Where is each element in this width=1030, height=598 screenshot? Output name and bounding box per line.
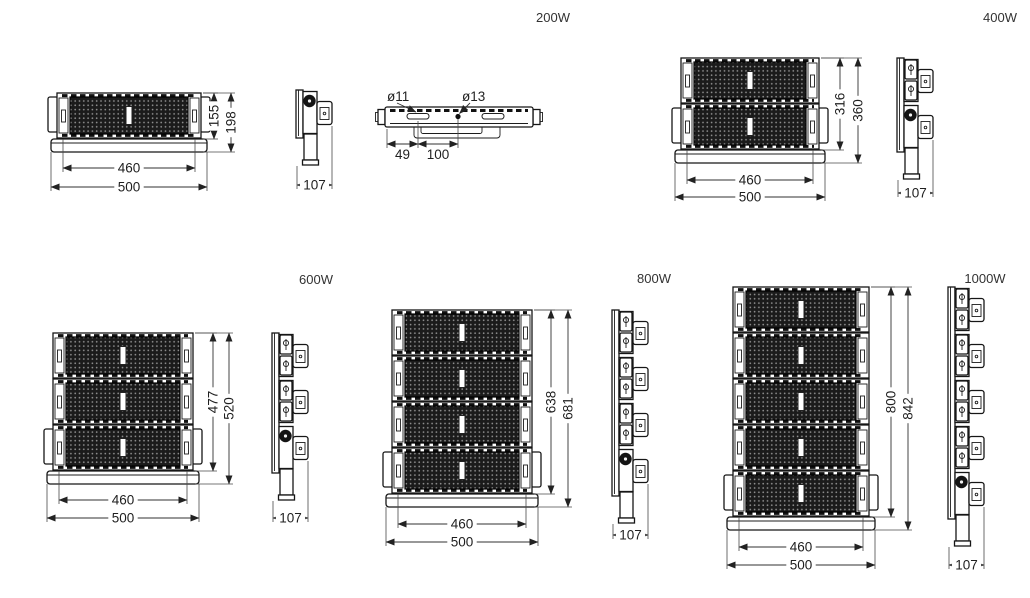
center-slot — [459, 462, 465, 480]
vertical-dimension-label: 842 — [901, 394, 916, 423]
dimension-label: 316 — [833, 93, 848, 116]
center-slot — [120, 347, 126, 365]
mount-slot-right — [482, 114, 504, 120]
back-plate — [296, 90, 303, 138]
dimension-label: 842 — [901, 397, 916, 420]
center-slot — [459, 370, 465, 388]
driver-box — [293, 345, 308, 368]
bracket-foot — [619, 518, 635, 523]
wattage-label: 800W — [637, 271, 672, 286]
top-end-cap-left — [378, 110, 385, 125]
bracket-foot — [279, 495, 295, 500]
vertical-dimension-label: 316 — [833, 89, 848, 118]
bracket-arm — [956, 515, 969, 541]
driver-box — [317, 102, 332, 125]
driver-box — [633, 414, 648, 437]
mount-base — [386, 494, 538, 507]
driver-box — [633, 460, 648, 483]
center-slot — [747, 72, 753, 90]
dimension-label: 107 — [955, 558, 978, 573]
center-slot — [120, 439, 126, 457]
center-slot — [459, 416, 465, 434]
center-slot — [798, 485, 804, 503]
dimension-label: 107 — [303, 178, 326, 193]
aiming-knob-center — [909, 113, 912, 116]
dimension-label: ø13 — [462, 89, 485, 104]
vertical-dimension-label: 681 — [561, 394, 576, 423]
center-slot — [459, 324, 465, 342]
driver-box — [918, 116, 933, 139]
dimension-label: 198 — [224, 111, 239, 134]
dimension-label: 638 — [544, 391, 559, 414]
dimension-label: 460 — [118, 161, 141, 176]
dimension-label: 360 — [851, 99, 866, 122]
center-slot — [798, 393, 804, 411]
center-slot — [120, 393, 126, 411]
dimension-label: 460 — [790, 540, 813, 555]
floodlight-dimension-sheet: 200W460500155198107400W46050031636010760… — [0, 0, 1030, 598]
mount-base — [51, 139, 207, 152]
bracket-foot — [904, 174, 920, 179]
dimension-label: 107 — [279, 511, 302, 526]
vertical-dimension-label: 198 — [224, 108, 239, 137]
driver-box — [293, 391, 308, 414]
driver-box — [969, 299, 984, 322]
dimension-label: 500 — [451, 535, 474, 550]
driver-box — [918, 70, 933, 93]
dimension-label: 460 — [451, 517, 474, 532]
back-plate — [272, 333, 279, 473]
bracket-arm — [620, 492, 633, 518]
wattage-label: 1000W — [964, 271, 1006, 286]
dimension-label: 107 — [619, 528, 642, 543]
mount-base — [675, 150, 825, 163]
mount-slot-left — [407, 114, 429, 120]
driver-box — [969, 391, 984, 414]
vertical-dimension-label: 477 — [206, 387, 221, 416]
wattage-label: 600W — [299, 272, 334, 287]
aiming-knob-center — [308, 99, 311, 102]
center-slot — [798, 439, 804, 457]
dimension-label: 681 — [561, 397, 576, 420]
bracket-arm — [905, 148, 918, 174]
dimension-label: 500 — [739, 190, 762, 205]
vertical-dimension-label: 155 — [207, 101, 222, 130]
vertical-dimension-label: 638 — [544, 387, 559, 416]
bracket-foot — [955, 541, 971, 546]
driver-box — [633, 368, 648, 391]
back-plate — [897, 58, 904, 152]
vertical-dimension-label: 800 — [884, 387, 899, 416]
driver-box — [633, 322, 648, 345]
driver-box — [969, 483, 984, 506]
mount-base — [47, 471, 199, 484]
vertical-dimension-label: 520 — [222, 394, 237, 423]
dimension-label: 100 — [427, 147, 450, 162]
center-slot — [126, 107, 132, 125]
wattage-label: 200W — [536, 10, 571, 25]
dimension-drawing-canvas: 200W460500155198107400W46050031636010760… — [0, 0, 1030, 598]
wattage-label: 400W — [983, 10, 1018, 25]
driver-box — [293, 437, 308, 460]
aiming-knob-center — [624, 457, 627, 460]
dimension-label: 49 — [395, 147, 410, 162]
center-slot — [798, 347, 804, 365]
driver-box — [969, 437, 984, 460]
dimension-label: 460 — [739, 173, 762, 188]
dimension-label: 500 — [118, 180, 141, 195]
aiming-knob-center — [960, 480, 963, 483]
dimension-label: 500 — [790, 558, 813, 573]
dimension-label: 155 — [207, 105, 222, 128]
center-hole — [455, 114, 460, 119]
dimension-label: 500 — [112, 511, 135, 526]
back-plate — [612, 310, 619, 496]
mount-base — [727, 517, 875, 530]
bracket-foot — [303, 160, 319, 165]
vertical-dimension-label: 360 — [851, 96, 866, 125]
dimension-label: 107 — [904, 186, 927, 201]
back-plate — [948, 287, 955, 519]
dimension-label: 477 — [206, 391, 221, 414]
dimension-label: 460 — [112, 493, 135, 508]
driver-box — [969, 345, 984, 368]
dimension-label: ø11 — [387, 89, 409, 104]
dimension-label: 800 — [884, 391, 899, 414]
bracket-arm — [304, 134, 317, 160]
bracket-arm — [280, 469, 293, 495]
aiming-knob-center — [284, 434, 287, 437]
top-end-cap-right — [533, 110, 540, 125]
center-slot — [747, 118, 753, 136]
center-slot — [798, 301, 804, 319]
dimension-label: 520 — [222, 397, 237, 420]
